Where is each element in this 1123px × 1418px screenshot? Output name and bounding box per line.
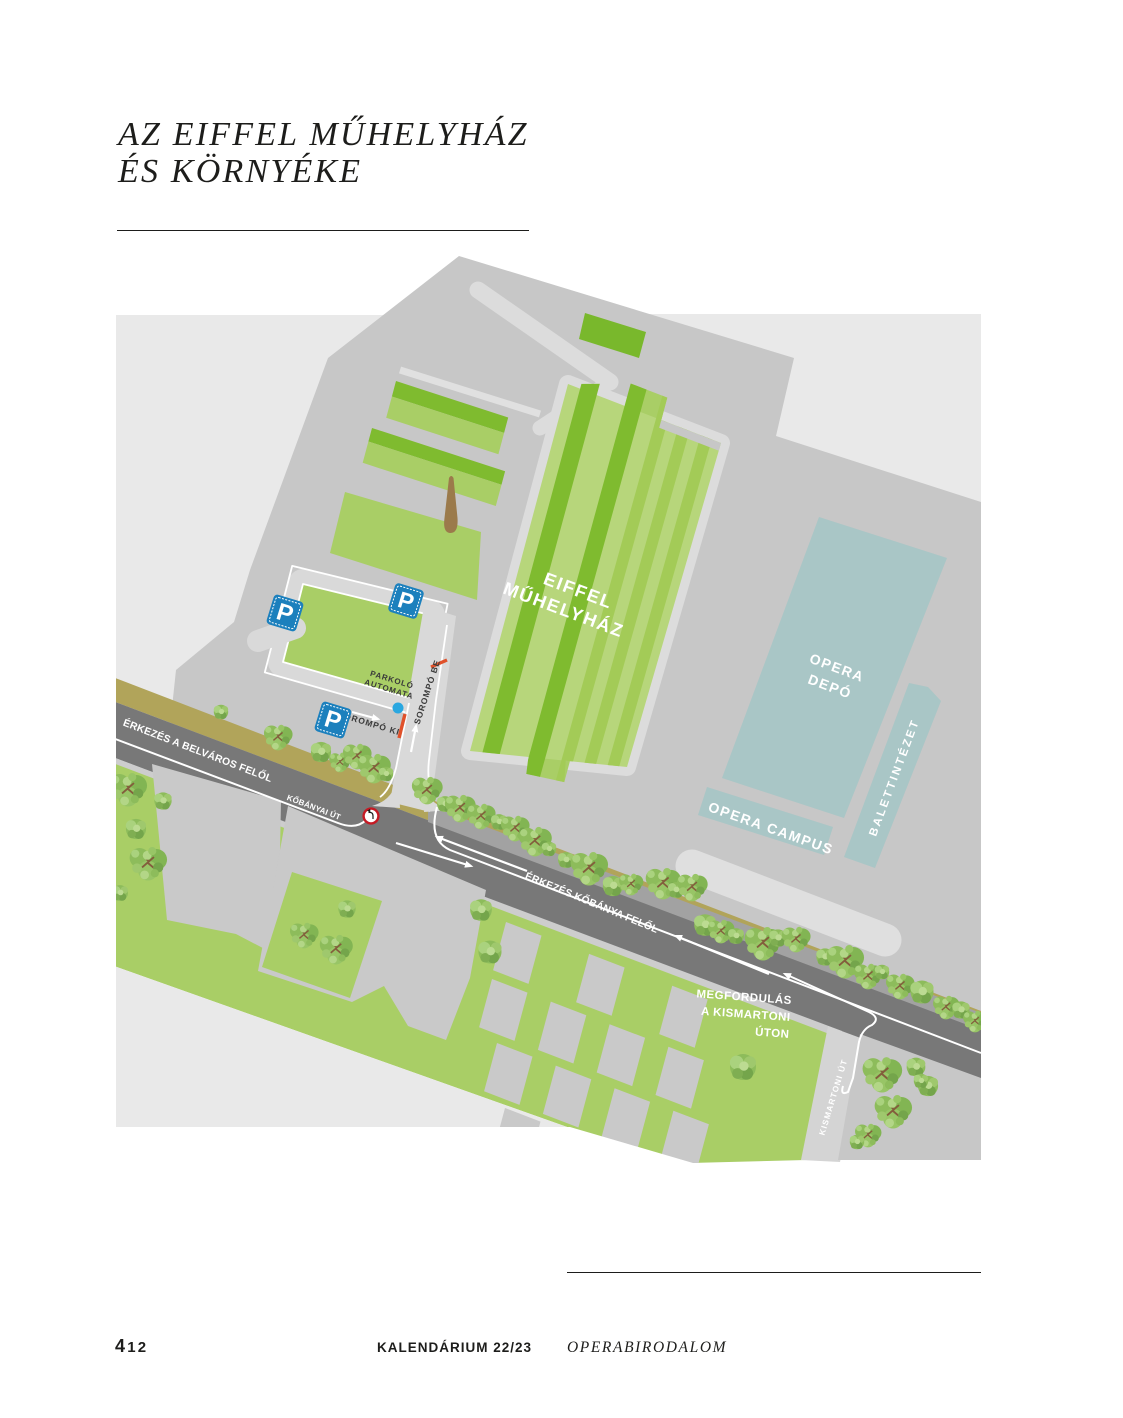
svg-text:ÚTON: ÚTON [755,1026,790,1041]
